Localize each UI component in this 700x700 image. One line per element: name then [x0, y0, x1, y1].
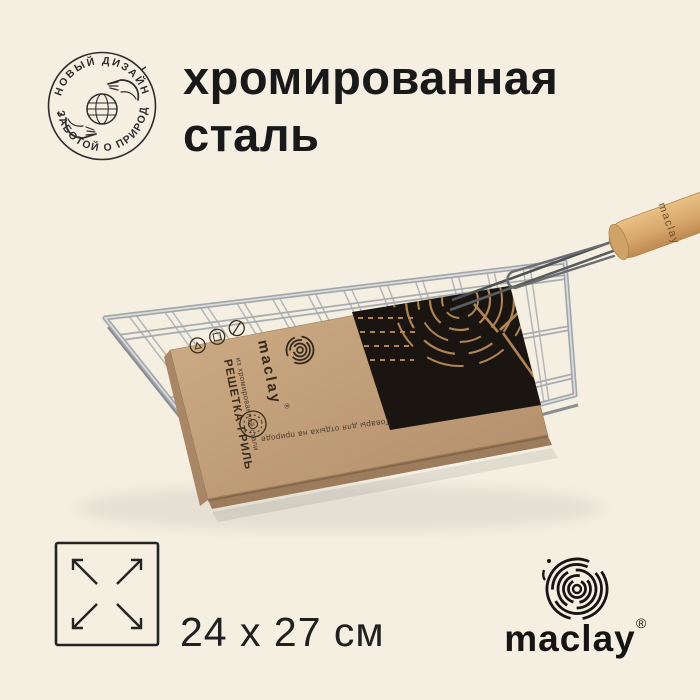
- kraft-sleeve: maclay ® РЕШЕТКА-ГРИЛЬ из хромированной …: [164, 234, 558, 522]
- title-line-1: хромированная: [183, 50, 558, 107]
- brand-wordmark: maclay: [504, 618, 636, 659]
- product-card: maclay ® РЕШЕТКА-ГРИЛЬ из хромированной …: [0, 0, 700, 700]
- page-title: хромированная сталь: [183, 50, 558, 164]
- size-label: 24 x 27 см: [180, 609, 385, 656]
- brand-reg: ®: [636, 615, 647, 631]
- handle-rod: [450, 247, 624, 310]
- hands-globe-icon: [66, 80, 139, 138]
- brand-rings-icon: [539, 551, 616, 628]
- eco-badge: НОВЫЙ ДИЗАЙН С ЗАБОТОЙ О ПРИРОДЕ: [0, 0, 156, 160]
- wood-handle: maclay: [603, 180, 700, 266]
- title-line-2: сталь: [183, 107, 558, 164]
- dimensions-icon: [56, 543, 158, 645]
- brand-logo: maclay ®: [504, 551, 647, 659]
